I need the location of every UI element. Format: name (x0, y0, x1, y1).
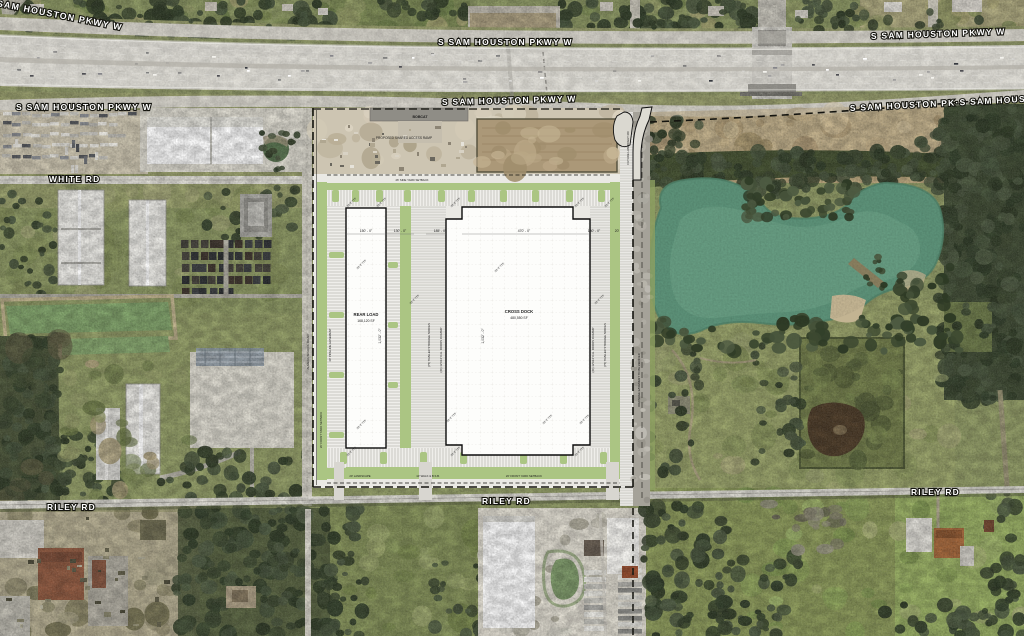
svg-text:185' - 0": 185' - 0" (434, 229, 447, 233)
svg-text:WHITE RD: WHITE RD (49, 174, 100, 184)
svg-text:20' LANDSCAPE: 20' LANDSCAPE (349, 474, 370, 478)
svg-text:(75) TRAILER STORAGE SPACES: (75) TRAILER STORAGE SPACES (603, 323, 607, 367)
svg-text:(26) 12'X14' O.H. DOORS IN RAM: (26) 12'X14' O.H. DOORS IN RAMP (439, 327, 443, 372)
svg-text:PROPOSED SHARED ACCESS RAMP: PROPOSED SHARED ACCESS RAMP (376, 136, 432, 140)
svg-text:20' FRONT YARD SETBACK: 20' FRONT YARD SETBACK (506, 474, 542, 478)
svg-text:S SAM HOUSTON PKWY W: S SAM HOUSTON PKWY W (16, 102, 152, 112)
svg-text:S SAM HOUSTON PKWY W: S SAM HOUSTON PKWY W (438, 37, 573, 47)
svg-text:DRAINAGE EASEMENT TO BE VERIFI: DRAINAGE EASEMENT TO BE VERIFIED (637, 353, 641, 406)
svg-text:(75) TRAILER STORAGE SPACES: (75) TRAILER STORAGE SPACES (427, 323, 431, 367)
svg-text:1,032' - 0": 1,032' - 0" (481, 328, 485, 344)
svg-text:20' FRONT YARD SETBACK: 20' FRONT YARD SETBACK (319, 412, 323, 448)
svg-text:ALMEDA SCHOOL ROAD: ALMEDA SCHOOL ROAD (306, 334, 310, 370)
svg-text:BOBCAT: BOBCAT (412, 115, 428, 119)
svg-text:480,550 SF: 480,550 SF (510, 316, 528, 320)
svg-text:(26) 12'X14' O.H. DOORS IN RAM: (26) 12'X14' O.H. DOORS IN RAMP (591, 327, 595, 372)
svg-text:CROSS DOCK: CROSS DOCK (505, 309, 533, 314)
svg-text:10' WALK & B.S.B.: 10' WALK & B.S.B. (416, 474, 440, 478)
svg-text:150' - 0": 150' - 0" (360, 229, 373, 233)
svg-text:130' - 0": 130' - 0" (394, 229, 407, 233)
svg-text:RILEY RD: RILEY RD (482, 496, 531, 506)
svg-text:1,032' - 0": 1,032' - 0" (378, 328, 382, 344)
svg-text:REAR LOAD: REAR LOAD (354, 312, 379, 317)
svg-text:470' - 0": 470' - 0" (518, 229, 531, 233)
svg-text:RILEY RD: RILEY RD (47, 502, 96, 512)
svg-text:20': 20' (615, 229, 620, 233)
svg-text:168,120 SF: 168,120 SF (357, 319, 375, 323)
svg-text:RILEY RD: RILEY RD (911, 487, 960, 497)
svg-text:26' SIDE YARD SETBACK: 26' SIDE YARD SETBACK (395, 178, 428, 182)
svg-text:30' PIPELINE EASEMENT: 30' PIPELINE EASEMENT (328, 328, 332, 361)
svg-text:FUTURE LAMBRIGHT RD: FUTURE LAMBRIGHT RD (626, 131, 630, 164)
svg-text:130' - 0": 130' - 0" (588, 229, 601, 233)
